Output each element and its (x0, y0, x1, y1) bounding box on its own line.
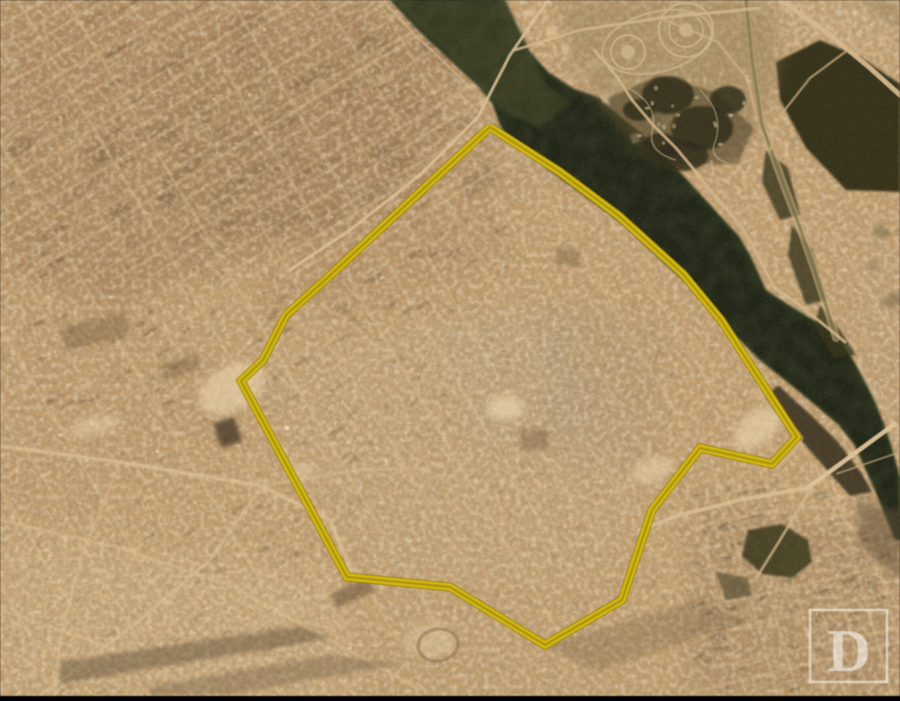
svg-text:D: D (827, 618, 870, 684)
